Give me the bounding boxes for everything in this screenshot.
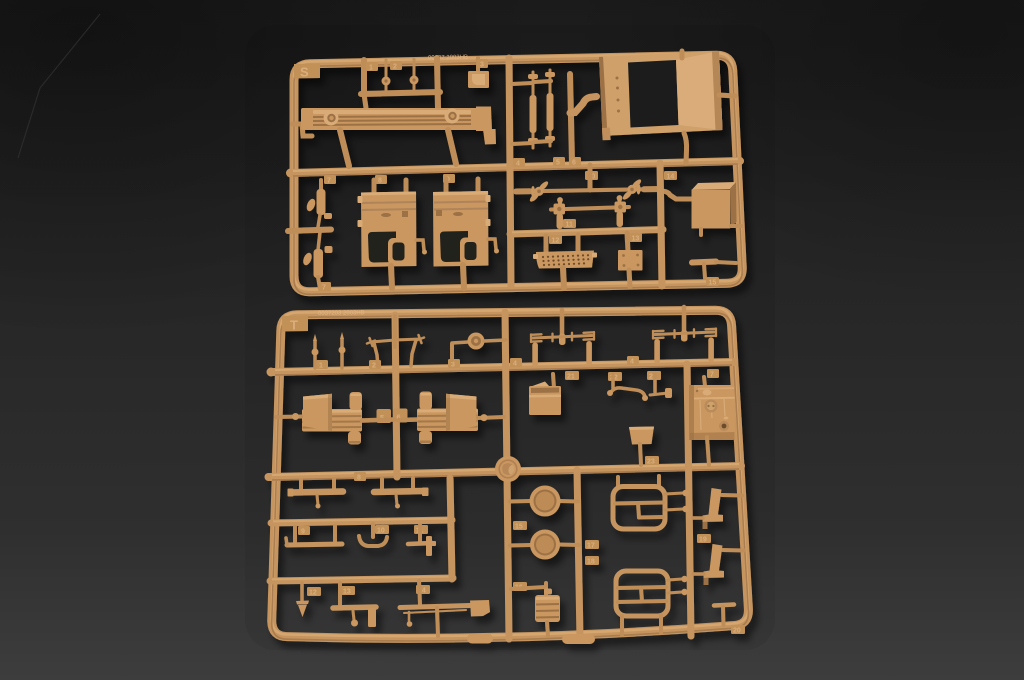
svg-text:7: 7: [327, 178, 331, 185]
svg-text:12: 12: [552, 238, 560, 245]
svg-text:13: 13: [632, 236, 640, 243]
svg-text:19: 19: [699, 537, 707, 544]
svg-text:7: 7: [322, 285, 326, 292]
svg-text:21: 21: [567, 374, 575, 381]
svg-text:9: 9: [301, 529, 305, 536]
svg-text:17: 17: [587, 543, 595, 550]
svg-text:2: 2: [372, 363, 376, 370]
svg-text:5: 5: [556, 160, 560, 167]
svg-text:S: S: [300, 65, 309, 80]
svg-text:23: 23: [647, 459, 655, 466]
svg-text:18: 18: [587, 559, 595, 566]
svg-text:12: 12: [309, 590, 317, 597]
svg-text:1: 1: [319, 363, 323, 370]
svg-text:15: 15: [709, 280, 717, 287]
svg-text:3: 3: [451, 362, 455, 369]
svg-text:7: 7: [710, 372, 714, 379]
svg-text:6: 6: [572, 160, 576, 167]
svg-text:10: 10: [377, 528, 385, 535]
svg-text:14: 14: [667, 174, 675, 181]
svg-text:2: 2: [393, 64, 397, 71]
svg-text:20: 20: [733, 628, 741, 635]
svg-text:3: 3: [480, 62, 484, 69]
svg-text:0037203 2003HB: 0037203 2003HB: [318, 310, 365, 317]
svg-text:4: 4: [513, 361, 517, 368]
svg-text:8: 8: [378, 178, 382, 185]
svg-text:T: T: [290, 318, 298, 333]
svg-text:13: 13: [343, 589, 351, 596]
svg-text:4: 4: [630, 359, 634, 366]
svg-text:00007 2003HB: 00007 2003HB: [428, 55, 468, 62]
svg-text:4: 4: [516, 161, 520, 168]
svg-text:15: 15: [515, 524, 523, 531]
svg-text:11: 11: [566, 222, 574, 229]
svg-text:1: 1: [369, 65, 373, 72]
svg-text:8: 8: [357, 475, 361, 482]
